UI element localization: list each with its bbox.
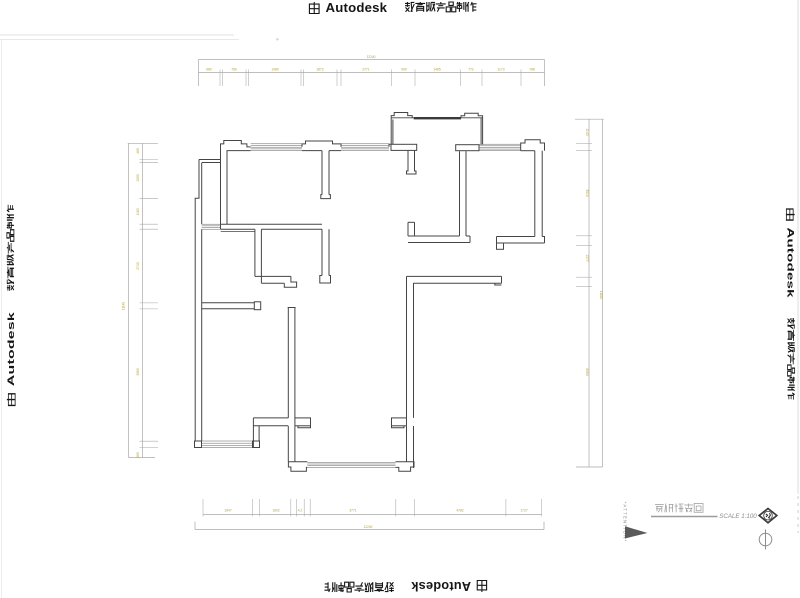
svg-text:1173: 1173	[497, 68, 504, 72]
svg-text:360: 360	[136, 452, 140, 458]
svg-text:768: 768	[529, 68, 535, 72]
svg-text:760: 760	[231, 68, 237, 72]
svg-text:1480: 1480	[271, 68, 279, 72]
svg-text:Autodesk: Autodesk	[785, 227, 796, 297]
svg-text:11640: 11640	[599, 291, 603, 300]
svg-text:3513: 3513	[585, 189, 589, 197]
svg-text:4.2: 4.2	[298, 509, 303, 513]
svg-text:4782: 4782	[456, 509, 464, 513]
svg-text:1377: 1377	[585, 254, 589, 262]
svg-text:1947: 1947	[224, 509, 232, 513]
svg-text:1160: 1160	[136, 208, 140, 215]
svg-text:3771: 3771	[349, 509, 357, 513]
svg-text:Autodesk: Autodesk	[326, 0, 388, 15]
svg-text:1602: 1602	[272, 509, 280, 513]
svg-text:6060: 6060	[585, 368, 589, 376]
svg-text:SCALE 1:100: SCALE 1:100	[719, 513, 757, 520]
svg-text:3960: 3960	[136, 368, 140, 376]
svg-text:1140: 1140	[585, 128, 589, 135]
svg-text:1500: 1500	[136, 174, 140, 182]
svg-text:900: 900	[401, 68, 407, 72]
svg-text:772: 772	[468, 68, 474, 72]
svg-text:12240: 12240	[364, 525, 373, 529]
svg-text:680: 680	[206, 68, 212, 72]
svg-text:2771: 2771	[362, 68, 370, 72]
svg-text:1727: 1727	[520, 509, 528, 513]
svg-text:480: 480	[136, 148, 140, 154]
svg-text:1485: 1485	[433, 68, 441, 72]
svg-text:11140: 11140	[122, 302, 126, 311]
svg-text:Autodesk: Autodesk	[411, 579, 471, 594]
svg-text:Autodesk: Autodesk	[5, 311, 16, 386]
svg-text:1872: 1872	[316, 68, 324, 72]
svg-text:12240: 12240	[367, 55, 376, 59]
svg-text:2740: 2740	[136, 262, 140, 270]
